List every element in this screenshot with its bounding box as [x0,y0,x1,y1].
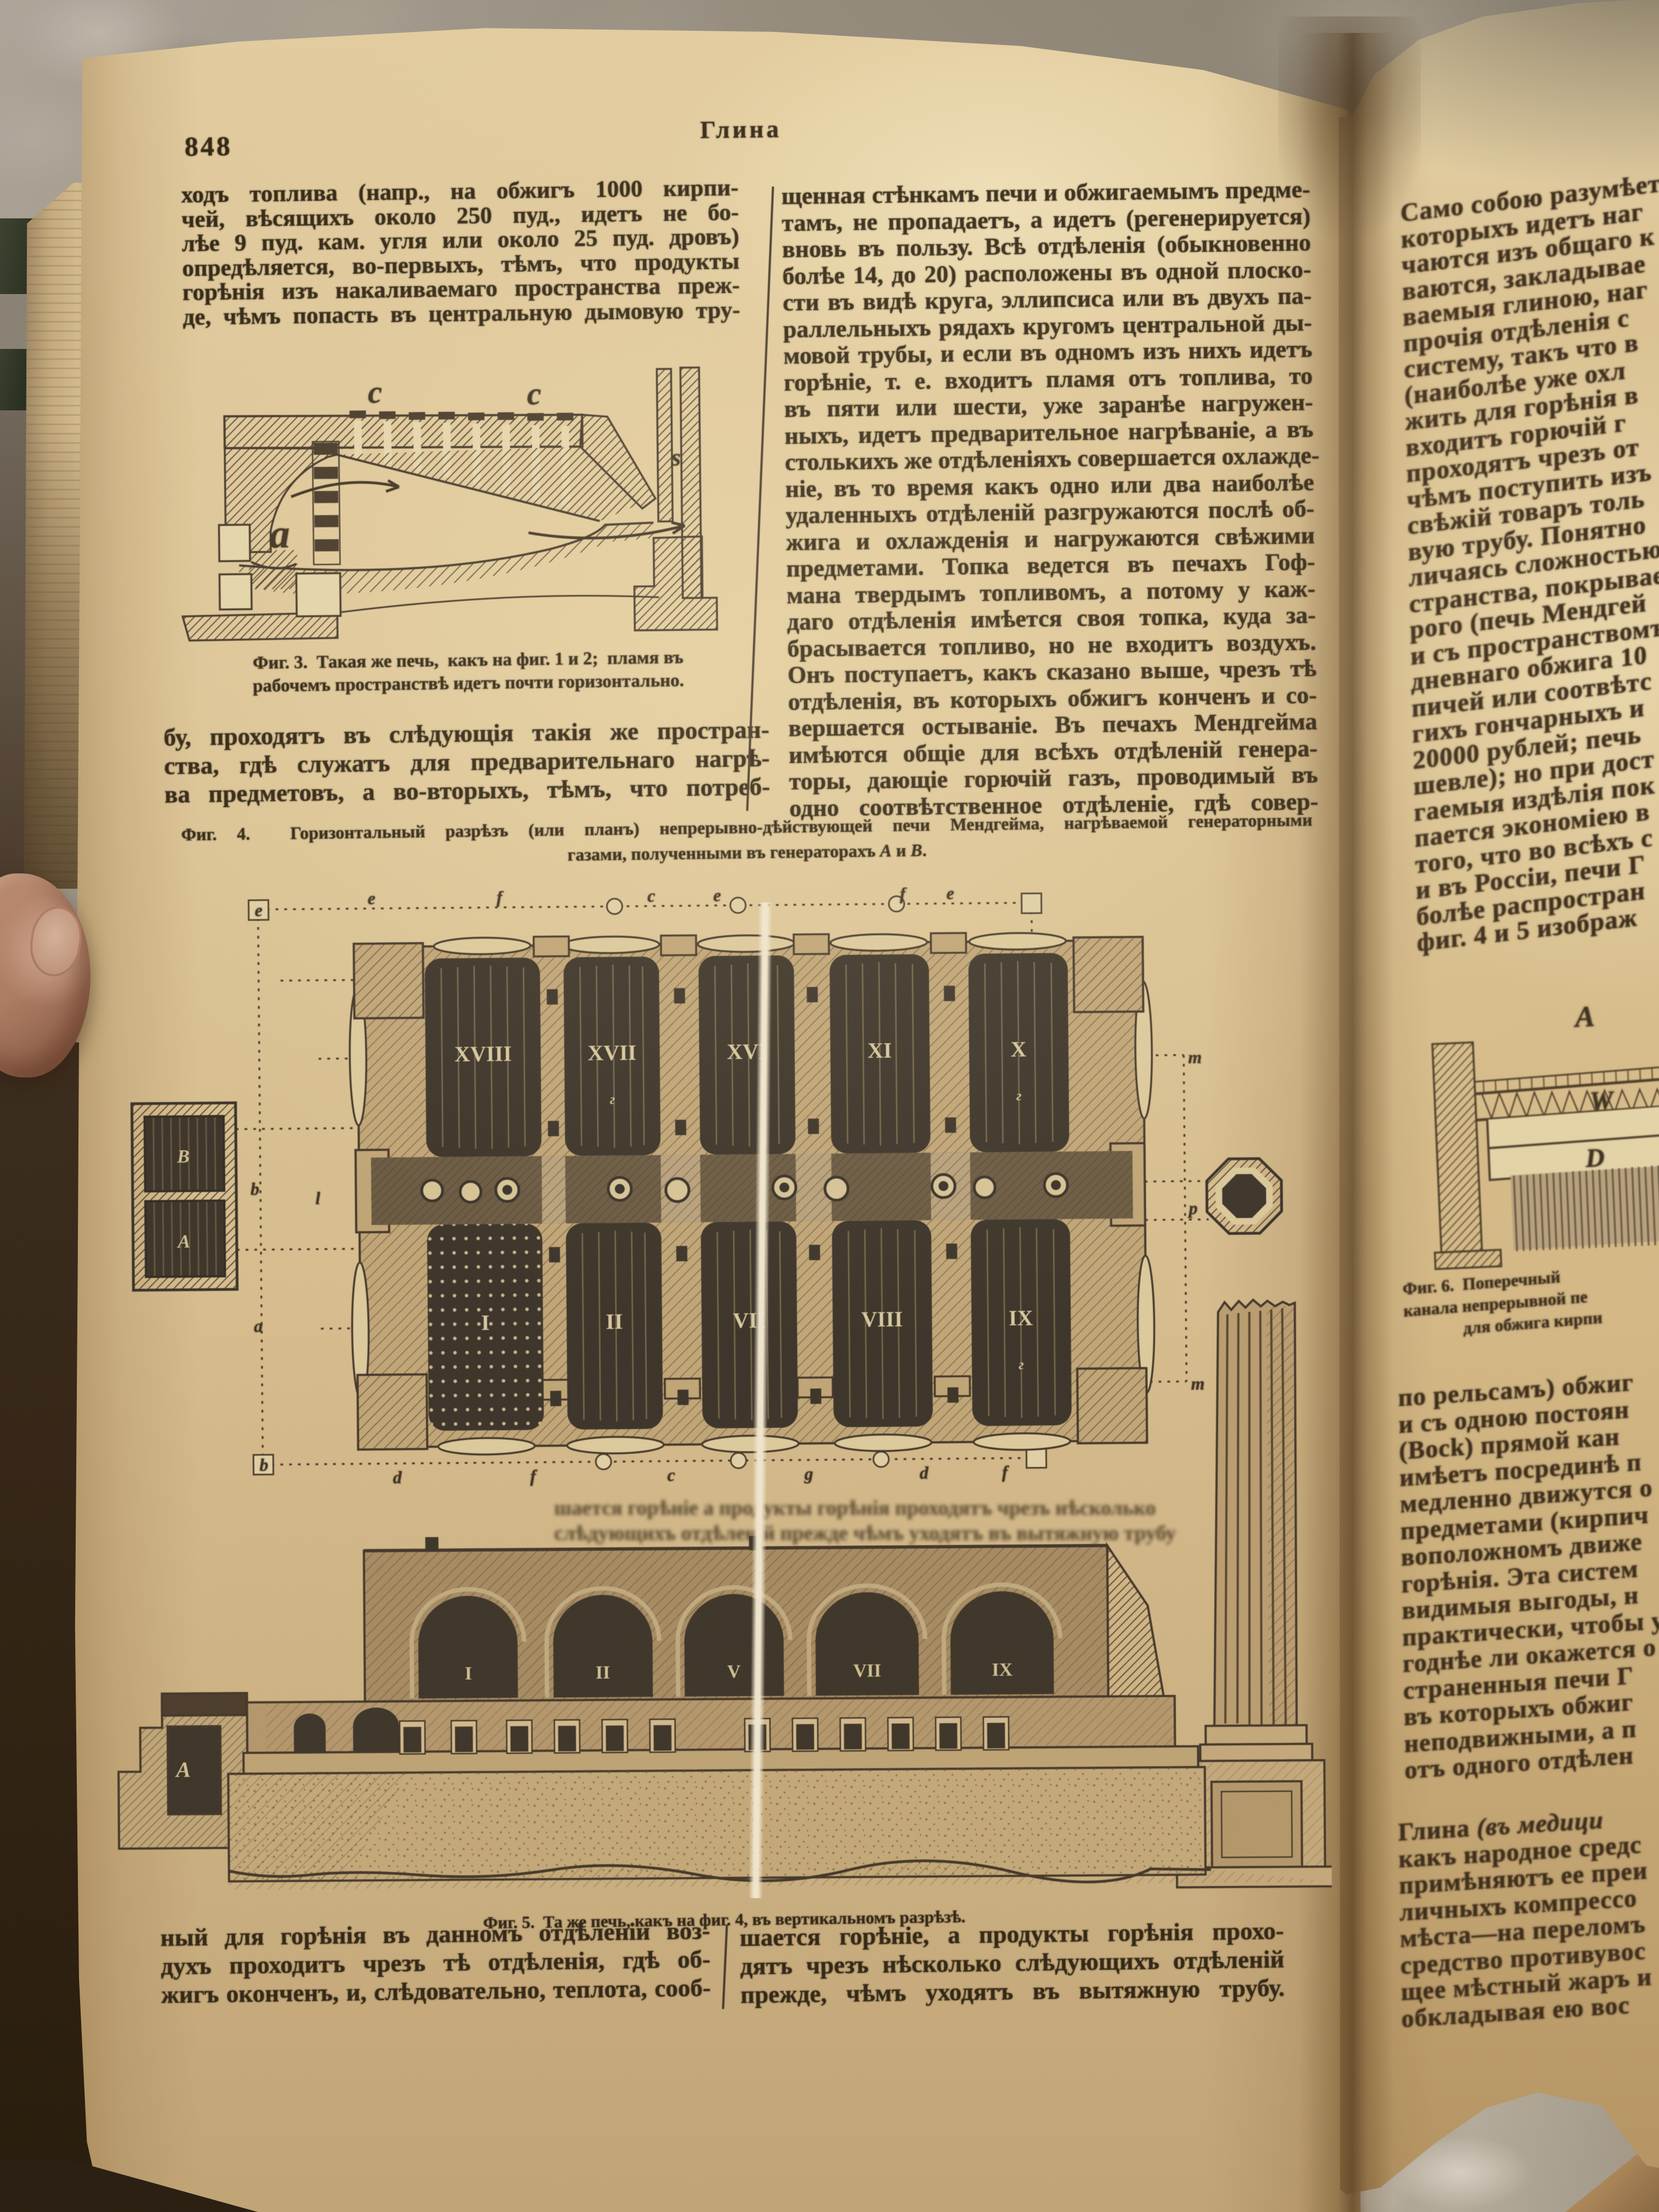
svg-text:D: D [1584,1143,1605,1173]
svg-text:A: A [1573,1000,1596,1034]
svg-text:W: W [1589,1086,1615,1116]
